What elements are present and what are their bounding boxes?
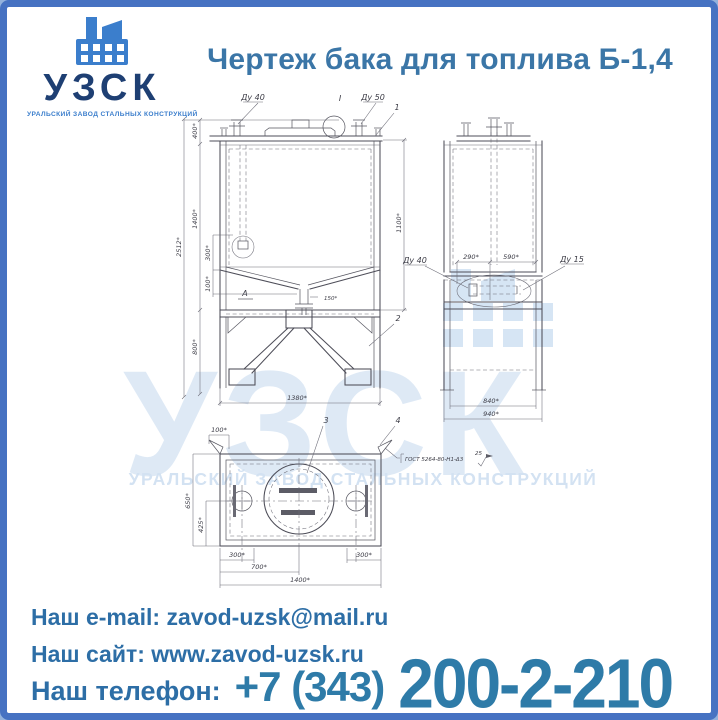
dim-plan-650: 650* (184, 492, 192, 508)
dim-plan-300l: 300* (229, 551, 245, 559)
dim-840: 840* (483, 397, 499, 405)
dim-300: 300* (204, 244, 212, 260)
dim-plan-1400: 1400* (290, 576, 311, 584)
callout-dy50-top: Ду 50 (360, 93, 385, 102)
page-title: Чертеж бака для топлива Б-1,4 (175, 43, 705, 77)
callout-dy40-top: Ду 40 (240, 93, 265, 102)
view-a-label: А (241, 289, 247, 298)
watermark: УЗСК УРАЛЬСКИЙ ЗАВОД СТАЛЬНЫХ КОНСТРУКЦИ… (123, 269, 597, 507)
dim-plan-425: 425* (197, 516, 205, 532)
dim-800: 800* (191, 338, 199, 354)
factory-icon (69, 15, 135, 67)
watermark-tagline: УРАЛЬСКИЙ ЗАВОД СТАЛЬНЫХ КОНСТРУКЦИЙ (129, 468, 598, 489)
contact-email-line: Наш e-mail: zavod-uzsk@mail.ru (31, 604, 388, 631)
page: УЗСК УРАЛЬСКИЙ ЗАВОД СТАЛЬНЫХ КОНСТРУКЦИ… (0, 0, 718, 720)
dim-1100: 1100* (395, 212, 403, 233)
callout-item1: 1 (394, 103, 399, 112)
dim-drain: 150* (324, 296, 337, 302)
dim-1400: 1400* (191, 208, 199, 229)
dim-plan-100: 100* (211, 426, 227, 434)
contact-phone-line: Наш телефон: +7 (343) 200-2-210 (31, 657, 699, 716)
callout-section-i: I (339, 94, 342, 103)
callout-dy40-side: Ду 40 (402, 256, 427, 265)
callout-item4: 4 (395, 416, 400, 425)
phone-label: Наш телефон: (31, 676, 221, 716)
dim-290: 290* (463, 253, 479, 261)
dim-plan-300r: 300* (356, 551, 372, 559)
callout-item2: 2 (395, 314, 400, 323)
dim-total-h: 2512* (175, 236, 183, 257)
callout-item3: 3 (323, 416, 328, 425)
dim-940: 940* (483, 410, 499, 418)
email-value[interactable]: zavod-uzsk@mail.ru (167, 604, 389, 630)
technical-drawing: УЗСК УРАЛЬСКИЙ ЗАВОД СТАЛЬНЫХ КОНСТРУКЦИ… (7, 92, 718, 592)
dim-100: 100* (204, 275, 212, 291)
dim-1380: 1380* (287, 394, 308, 402)
dim-400: 400* (191, 122, 199, 138)
gost-note: ГОСТ 5264-80-Н1-Δ3 (405, 457, 464, 463)
email-label: Наш e-mail: (31, 604, 160, 630)
callout-dy15: Ду 15 (559, 255, 584, 264)
phone-code: +7 (343) (235, 663, 385, 716)
dim-590: 590* (503, 253, 519, 261)
dim-plan-700: 700* (251, 563, 267, 571)
phone-number: 200-2-210 (398, 652, 672, 716)
gost-size: 25 (475, 451, 482, 457)
